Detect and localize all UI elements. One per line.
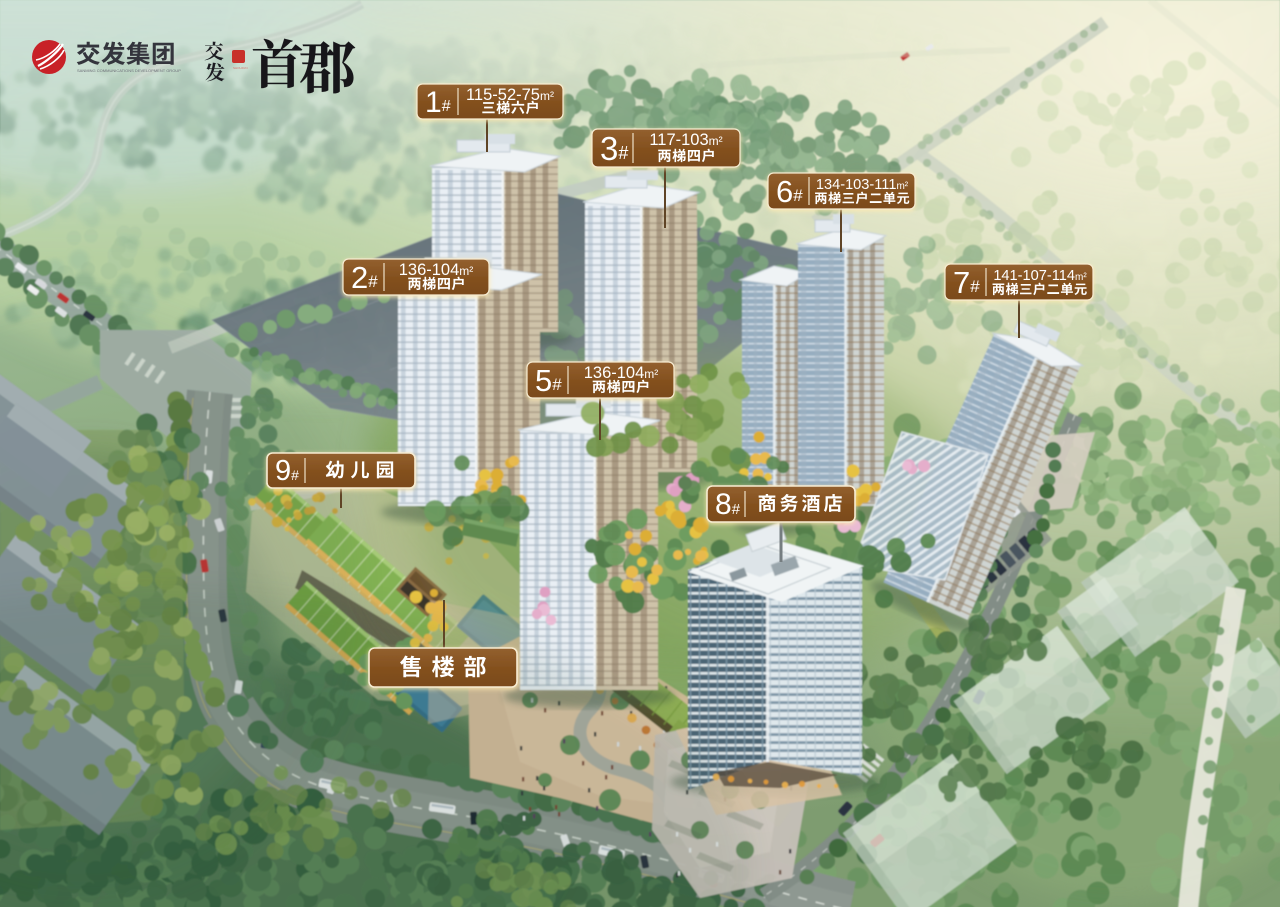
svg-text:117-103m²: 117-103m²	[649, 131, 722, 149]
svg-text:134-103-111m²: 134-103-111m²	[816, 177, 909, 193]
svg-text:136-104m²: 136-104m²	[584, 364, 659, 382]
svg-text:115-52-75m²: 115-52-75m²	[466, 86, 554, 104]
svg-text:141-107-114m²: 141-107-114m²	[993, 268, 1087, 284]
svg-text:SHOUJUN: SHOUJUN	[233, 66, 248, 70]
svg-text:136-104m²: 136-104m²	[399, 261, 474, 279]
svg-text:SANMING COMMUNICATIONS DEVELOP: SANMING COMMUNICATIONS DEVELOPMENT GROUP	[77, 68, 181, 73]
